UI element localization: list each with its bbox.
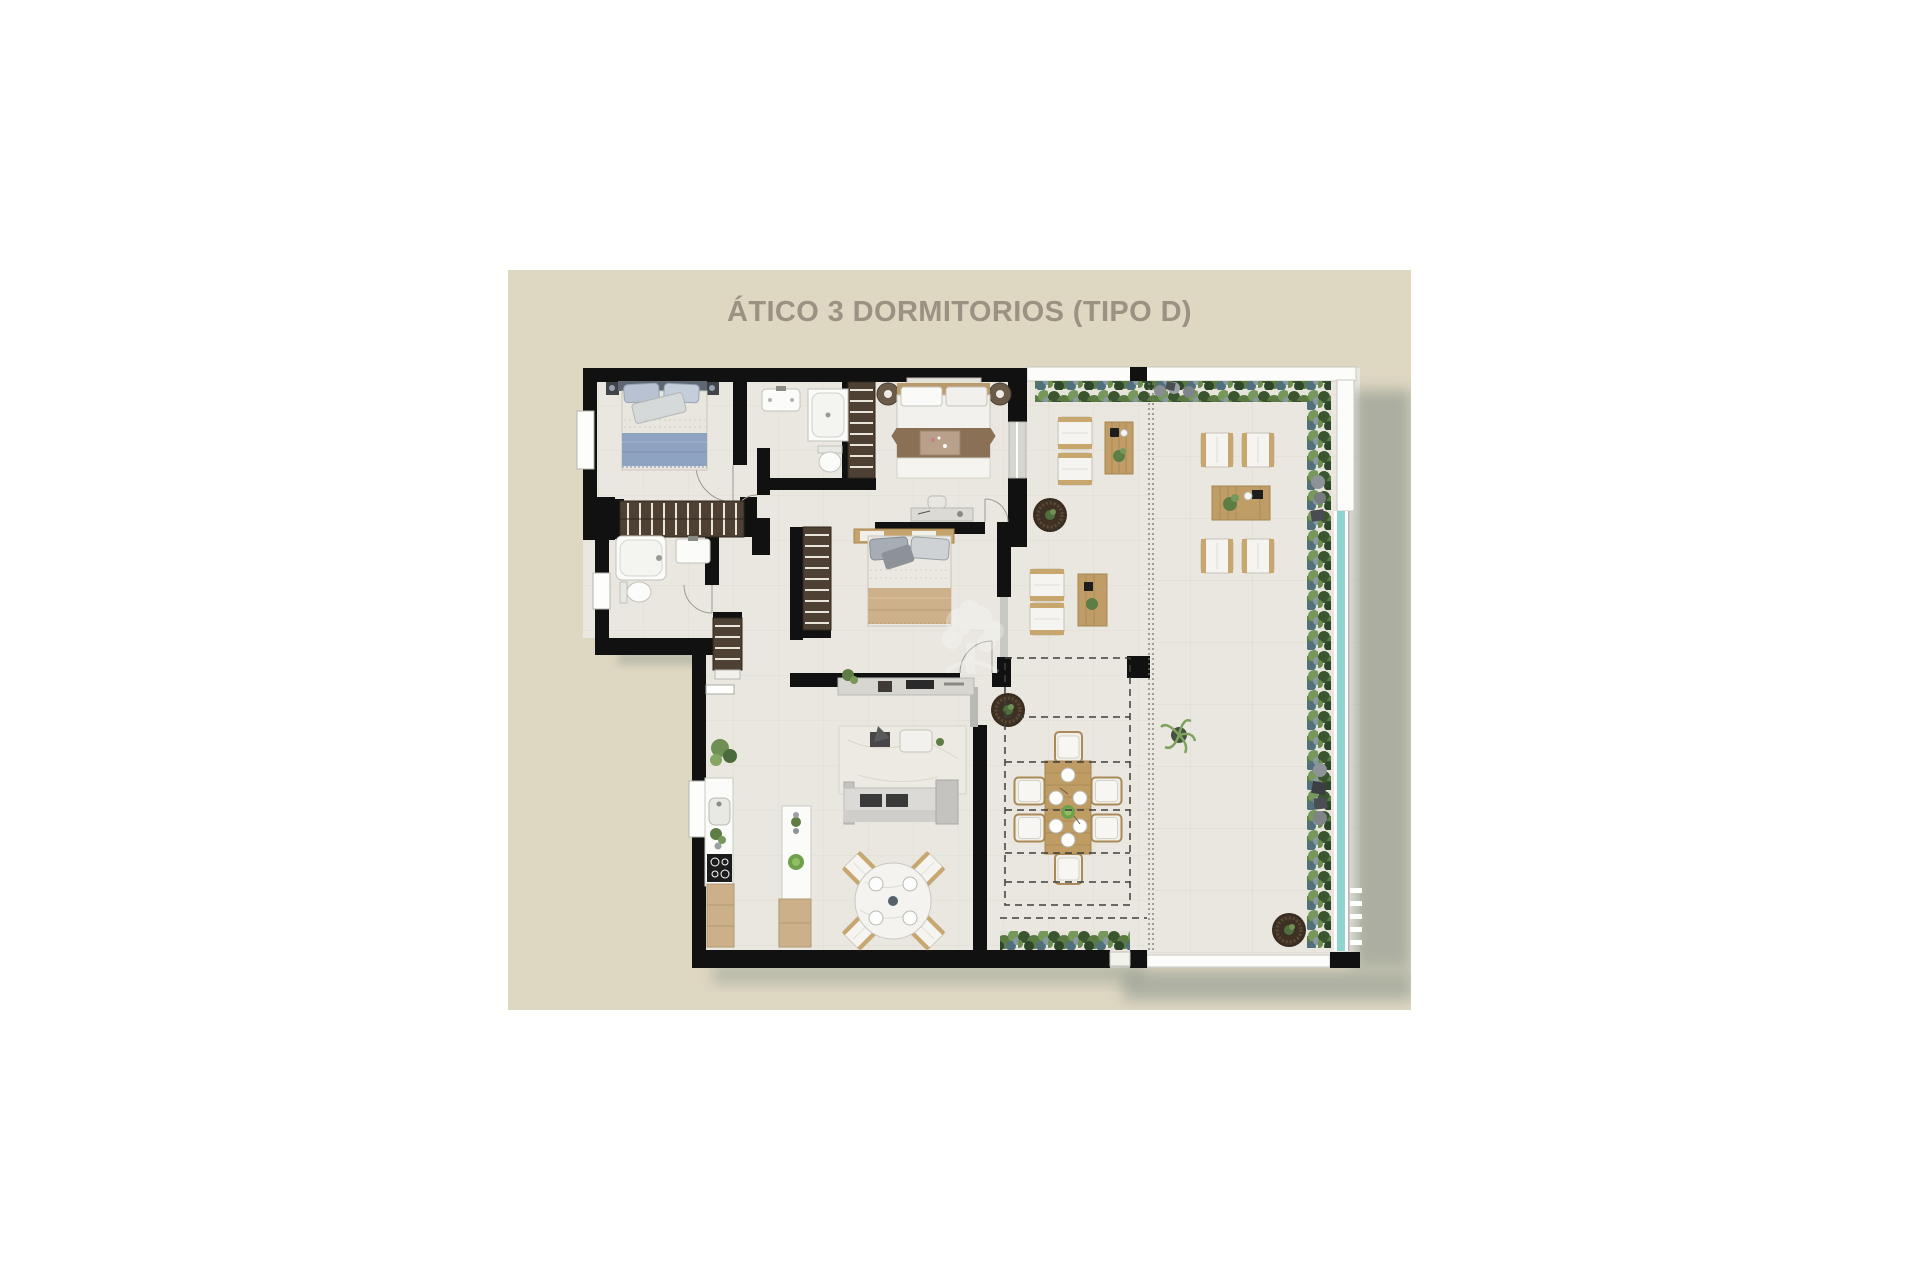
tv [906,680,934,689]
desk-chair [928,496,946,508]
floorplan-panel: ÁTICO 3 DORMITORIOS (TIPO D) [508,270,1411,1010]
bathtub [616,536,666,580]
dining-chair [1092,778,1122,805]
wardrobe-bedroom-1 [620,501,744,537]
coffee-table [1105,422,1133,474]
outside-mask [508,638,692,1010]
entry-door [706,685,734,694]
round-planter [991,693,1025,727]
console-desk [911,508,973,521]
page: ÁTICO 3 DORMITORIOS (TIPO D) [0,0,1920,1280]
armchair [900,730,932,752]
kitchen-cabinets [707,884,734,947]
terrace-armchair [1242,539,1274,573]
double-bed-tan [868,536,951,626]
cooktop [707,854,732,882]
dining-chair [1055,854,1082,884]
terrace-roof-band [1027,367,1356,381]
toilet [620,582,651,603]
round-planter [1033,498,1067,532]
coffee-table [1212,486,1270,520]
double-bed-blue [618,381,707,470]
toilet [818,446,842,472]
sink [676,539,710,563]
dining-chair [1055,732,1082,762]
wardrobe-bathroom-1 [848,382,875,478]
wardrobe-hallway [713,618,742,679]
double-bed-master [892,383,995,478]
bedroom-1-furniture [606,381,719,470]
terrace-armchair [1058,417,1092,449]
terrace-armchair [1058,453,1092,485]
floorplan-drawing [508,270,1411,1010]
living-room [838,669,974,824]
terrace-armchair [1030,569,1064,601]
sink [762,389,800,411]
coffee-table [1078,574,1107,626]
terrace-armchair [1201,539,1233,573]
kitchen-island [779,806,811,947]
wardrobe-bedroom-3 [803,527,831,630]
terrace-armchair [1030,603,1064,635]
terrace-armchair [1242,433,1274,467]
dining-chair [1015,815,1045,842]
dining-chair [1015,778,1045,805]
bedroom-3-furniture [854,529,954,626]
shower [808,389,848,441]
terrace-armchair [1201,433,1233,467]
round-planter [1272,913,1306,947]
indoor-dining-set [842,851,945,950]
dining-chair [1092,815,1122,842]
